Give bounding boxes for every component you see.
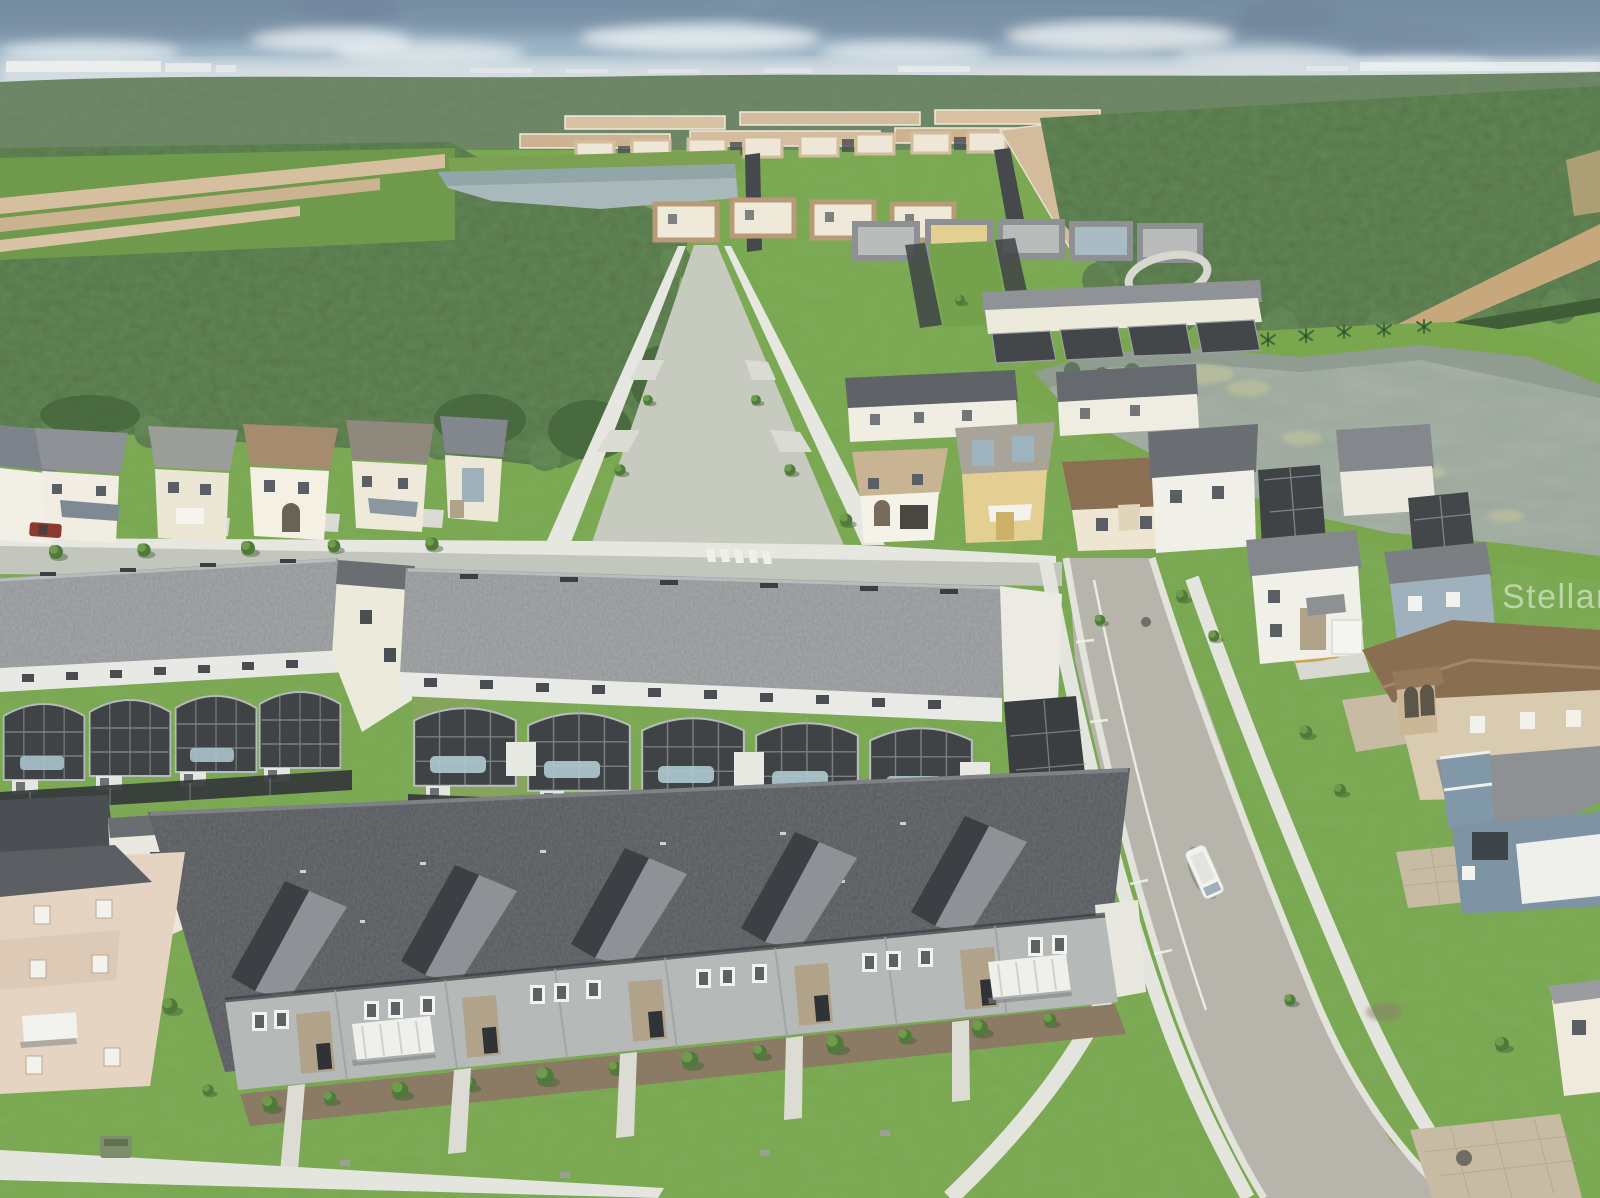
house (148, 426, 238, 542)
lakefront-cage-row (982, 280, 1262, 363)
aerial-photo: StellarMLS (0, 0, 1600, 1198)
window-awning (22, 1012, 78, 1042)
house-bluegray-porch (1436, 746, 1600, 914)
house (440, 416, 508, 522)
house-at-bend (1246, 530, 1364, 664)
red-pickup (29, 522, 62, 538)
road-stain (1366, 1003, 1402, 1021)
scene-canvas: StellarMLS (0, 0, 1600, 1198)
house-yellow (955, 422, 1055, 543)
row1-right-end (1000, 586, 1062, 706)
stellar-mls-watermark: StellarMLS (1502, 578, 1600, 616)
manhole-2 (1456, 1150, 1472, 1166)
manhole (1141, 617, 1151, 627)
house (346, 420, 434, 532)
house-mediterranean (852, 448, 948, 543)
house (243, 424, 338, 540)
